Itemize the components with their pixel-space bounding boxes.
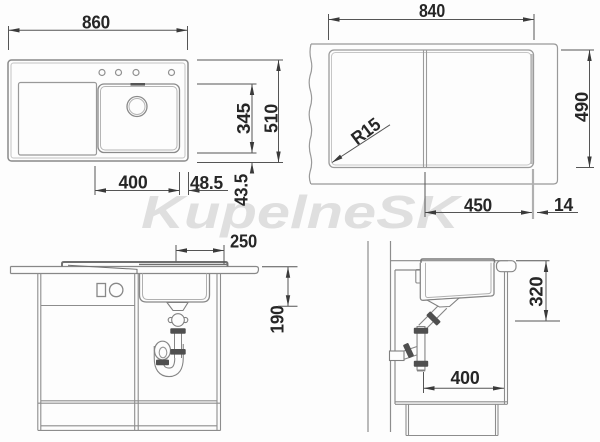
svg-text:14: 14 (554, 194, 574, 215)
svg-text:KupelneSK: KupelneSK (141, 186, 463, 238)
svg-text:345: 345 (233, 103, 254, 134)
svg-text:320: 320 (526, 277, 547, 307)
svg-text:840: 840 (419, 0, 445, 21)
svg-text:190: 190 (267, 306, 288, 334)
svg-text:400: 400 (119, 171, 148, 192)
svg-text:400: 400 (451, 367, 480, 388)
svg-text:48.5: 48.5 (190, 172, 223, 193)
svg-text:R15: R15 (347, 113, 384, 148)
svg-text:490: 490 (571, 92, 592, 122)
svg-text:250: 250 (230, 231, 257, 252)
svg-text:860: 860 (82, 11, 110, 32)
svg-text:43.5: 43.5 (231, 174, 252, 206)
